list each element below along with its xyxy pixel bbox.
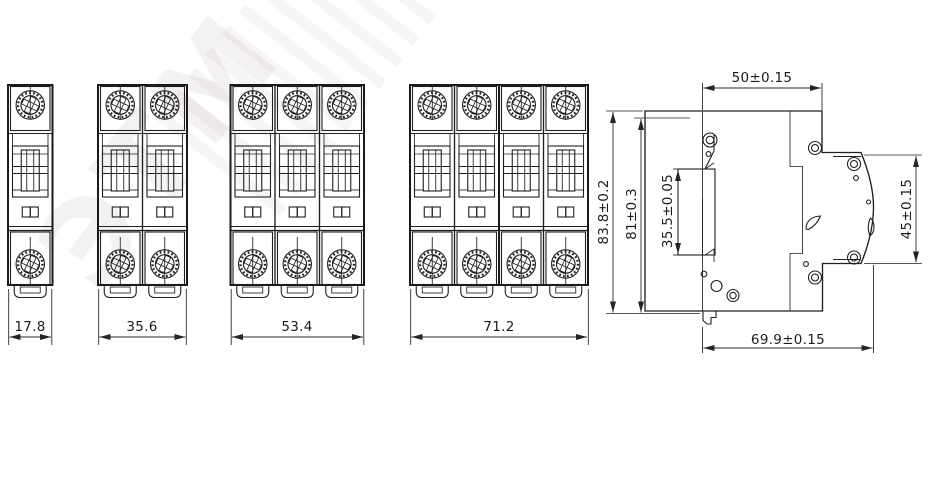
dimension-label-overall-height: 83.8±0.2 (596, 179, 612, 244)
front-view-1-pole (8, 85, 53, 345)
dimension-label-body-height: 81±0.3 (624, 188, 640, 240)
dimension-label-2pole-width: 35.6 (126, 319, 157, 335)
dimension-label-4pole-width: 71.2 (483, 319, 514, 335)
dimension-label-1pole-width: 17.8 (14, 319, 45, 335)
dimension-label-3pole-width: 53.4 (281, 319, 312, 335)
front-view-3-pole (231, 85, 365, 345)
dimension-label-din-slot: 35.5±0.05 (660, 174, 676, 248)
front-view-2-pole (98, 85, 187, 345)
front-view-4-pole (410, 85, 588, 345)
mcb-dimension-drawing: ЭТМ (0, 0, 933, 500)
dimension-label-top-width: 50±0.15 (732, 70, 793, 86)
dimension-label-depth: 69.9±0.15 (751, 332, 825, 348)
dimension-label-front-height: 45±0.15 (899, 179, 915, 240)
side-view (606, 83, 922, 353)
technical-drawing (0, 0, 933, 500)
